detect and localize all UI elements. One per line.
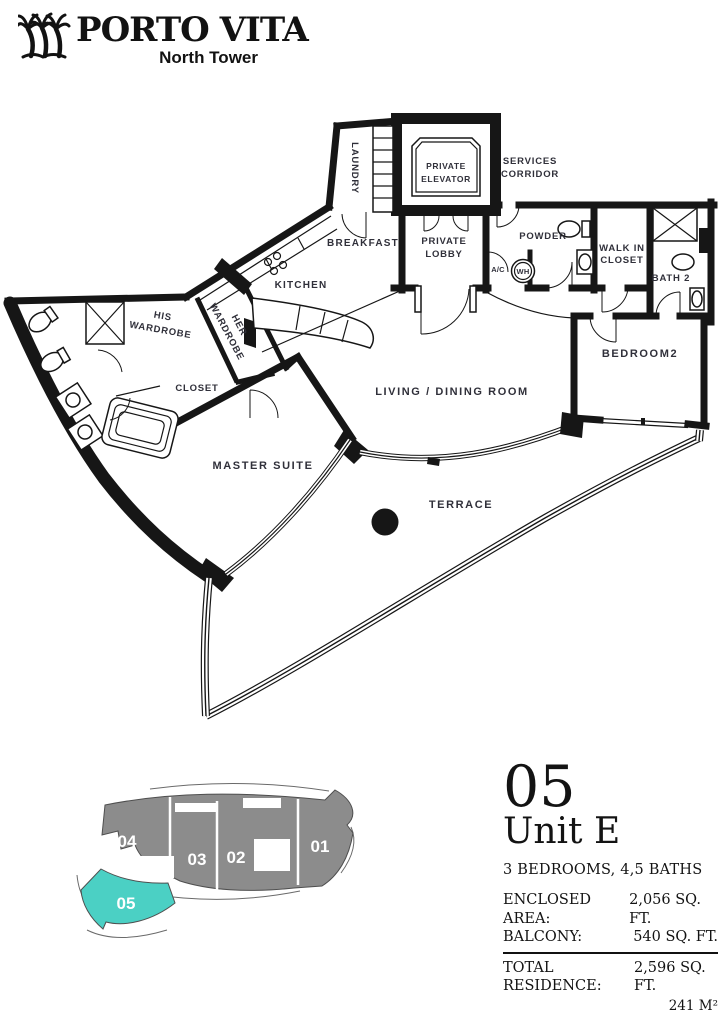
svg-text:ELEVATOR: ELEVATOR: [421, 174, 471, 184]
bath2-label: BATH 2: [652, 273, 690, 284]
area-value: 2,056 SQ. FT.: [629, 891, 718, 928]
services-corridor-label: SERVICES CORRIDOR: [501, 156, 559, 180]
wh-label: WH: [517, 267, 530, 276]
area-row: ENCLOSED AREA: 2,056 SQ. FT.: [503, 891, 718, 928]
unit-03-number: 03: [188, 850, 207, 869]
svg-text:CORRIDOR: CORRIDOR: [501, 169, 559, 180]
toilet: [25, 305, 59, 336]
area-value: 540 SQ. FT.: [633, 928, 718, 947]
bedroom2-label: BEDROOM2: [602, 348, 678, 360]
svg-text:CLOSET: CLOSET: [600, 255, 643, 266]
total-value: 2,596 SQ. FT.: [634, 959, 718, 996]
glass-walls: [226, 412, 688, 574]
private-lobby-label: PRIVATE LOBBY: [421, 236, 466, 260]
laundry-label: LAUNDRY: [349, 142, 360, 194]
unit-05-number: 05: [117, 894, 136, 913]
area-table: ENCLOSED AREA: 2,056 SQ. FT. BALCONY: 54…: [503, 891, 718, 1014]
svg-text:SERVICES: SERVICES: [503, 156, 557, 167]
breakfast-label: BREAKFAST: [327, 238, 399, 249]
terrace-railing: [205, 430, 700, 716]
info-panel: 05 Unit E 3 BEDROOMS, 4,5 BATHS ENCLOSED…: [503, 758, 718, 1014]
area-label: BALCONY:: [503, 928, 582, 947]
area-row: BALCONY: 540 SQ. FT.: [503, 928, 718, 947]
unit-02-number: 02: [227, 848, 246, 867]
walk-in-closet-label: WALK IN CLOSET: [599, 243, 645, 266]
bathtub: [100, 396, 180, 460]
unit-name: Unit E: [503, 814, 718, 850]
total-divider: [503, 952, 718, 954]
terrace-label: TERRACE: [429, 499, 493, 511]
ac-label: A/C: [491, 265, 505, 274]
floor-plan: LAUNDRY PRIVATE ELEVATOR SERVICES CORRID…: [0, 0, 722, 760]
total-label: TOTAL RESIDENCE:: [503, 959, 634, 996]
unit-configuration: 3 BEDROOMS, 4,5 BATHS: [503, 862, 718, 878]
kitchen-label: KITCHEN: [275, 280, 328, 291]
master-suite-label: MASTER SUITE: [212, 460, 313, 472]
svg-text:LOBBY: LOBBY: [425, 249, 462, 260]
unit-01-number: 01: [311, 837, 330, 856]
terrace-column: [372, 509, 399, 536]
powder-label: POWDER: [519, 231, 567, 242]
svg-text:PRIVATE: PRIVATE: [421, 236, 466, 247]
key-plan: 01 02 03 04 05: [55, 775, 385, 950]
svg-text:WALK IN: WALK IN: [599, 243, 645, 254]
bath2-fixtures: [653, 208, 704, 310]
area-label: ENCLOSED AREA:: [503, 891, 629, 928]
his-wardrobe-label: HIS WARDROBE: [128, 306, 194, 342]
total-metric: 241 M²: [503, 998, 718, 1014]
closet-label: CLOSET: [175, 383, 218, 394]
living-dining-label: LIVING / DINING ROOM: [375, 386, 529, 398]
svg-text:HIS: HIS: [153, 310, 173, 324]
svg-text:PRIVATE: PRIVATE: [426, 161, 466, 171]
svg-text:WARDROBE: WARDROBE: [128, 319, 192, 341]
unit-04-number: 04: [118, 832, 137, 851]
unit-number: 05: [503, 758, 718, 816]
laundry-shelving: [373, 126, 393, 212]
total-row: TOTAL RESIDENCE: 2,596 SQ. FT.: [503, 959, 718, 996]
